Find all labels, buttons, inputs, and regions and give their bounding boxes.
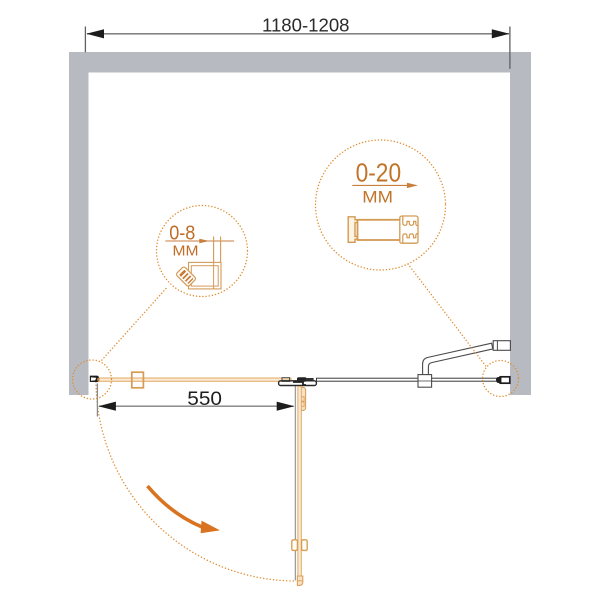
svg-text:550: 550 — [187, 388, 222, 410]
svg-text:1180-1208: 1180-1208 — [262, 16, 350, 36]
svg-text:0-20: 0-20 — [356, 158, 402, 188]
svg-text:MM: MM — [362, 187, 393, 206]
svg-text:MM: MM — [173, 243, 199, 259]
